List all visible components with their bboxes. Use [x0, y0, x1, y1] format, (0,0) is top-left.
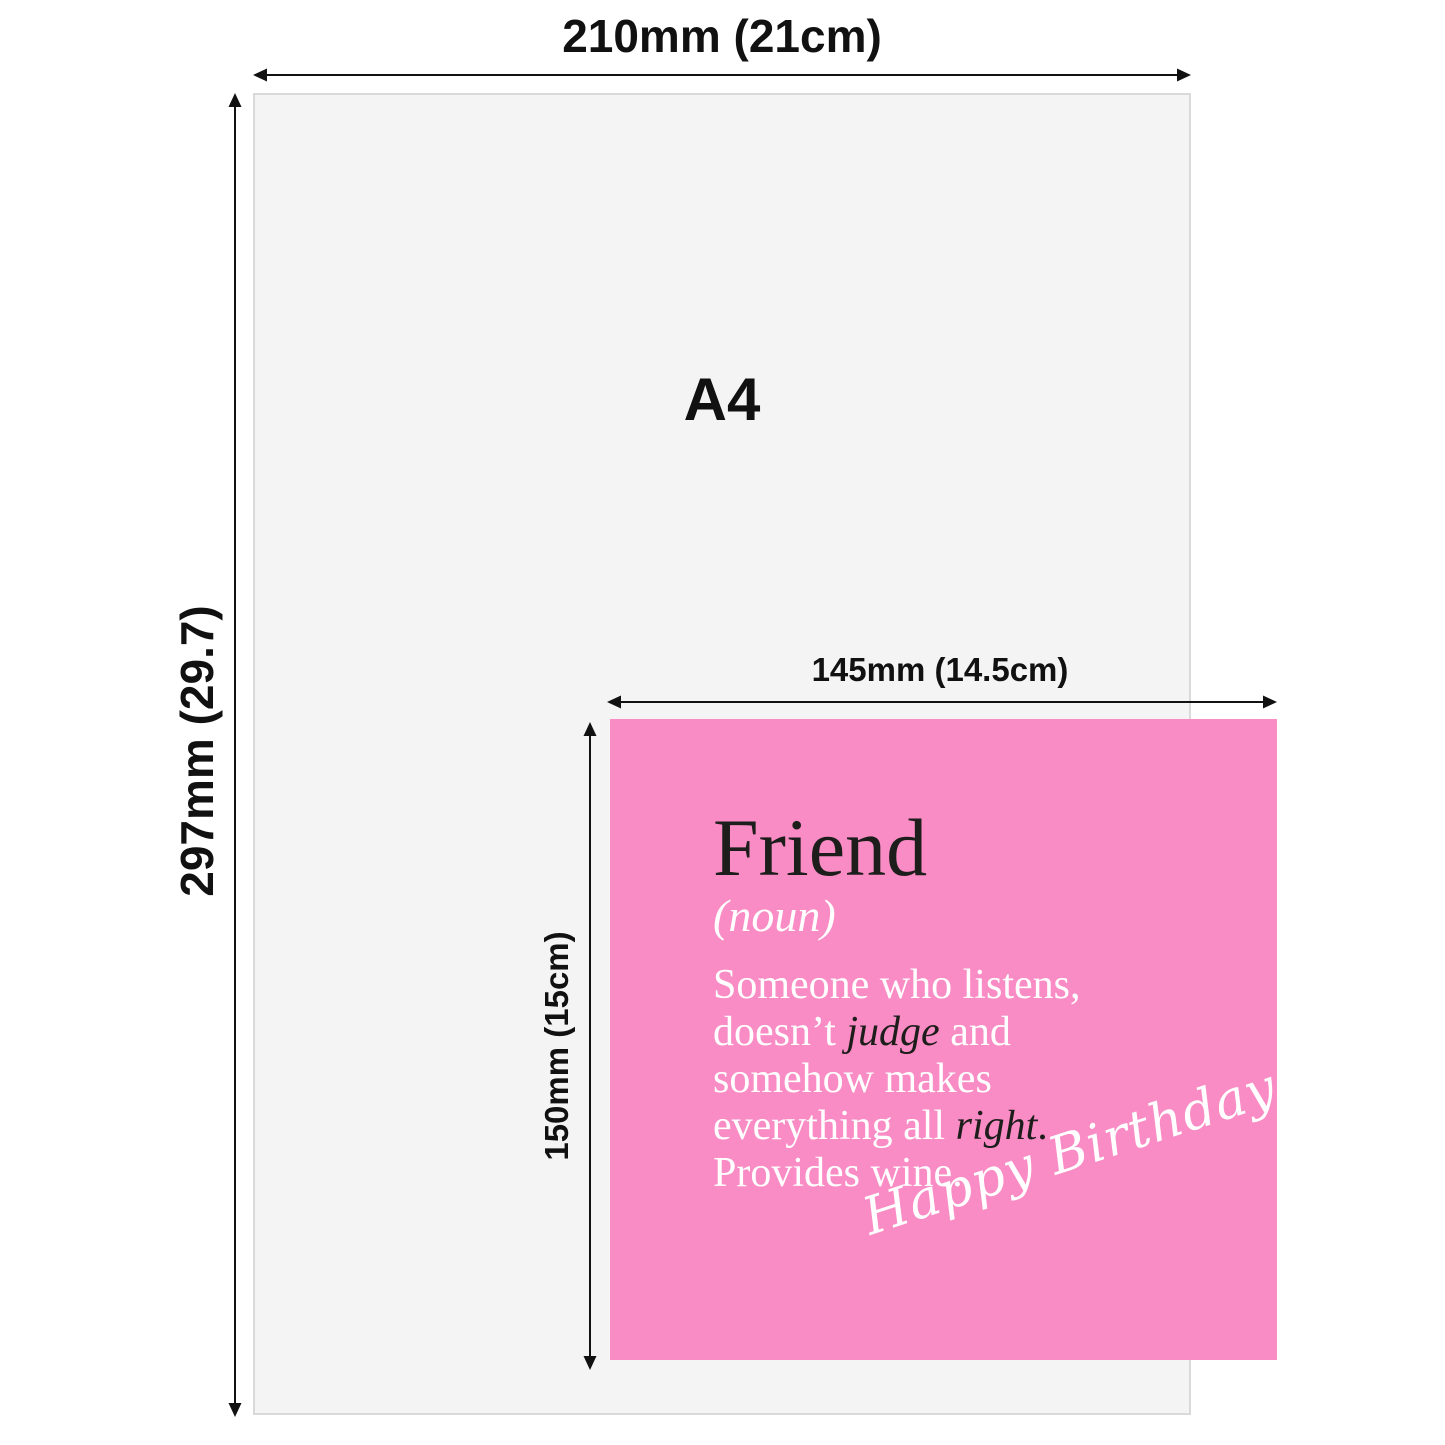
card-title: Friend — [713, 807, 1247, 889]
card-height-label: 150mm (15cm) — [540, 746, 574, 1346]
card-width-label: 145mm (14.5cm) — [640, 651, 1240, 689]
a4-width-arrow — [253, 69, 1191, 82]
definition-line: Someone who listens, — [713, 962, 1247, 1009]
a4-height-arrow — [229, 93, 242, 1417]
greeting-card: Friend (noun) Someone who listens,doesn’… — [610, 719, 1277, 1360]
a4-size-label: A4 — [255, 365, 1189, 434]
a4-height-label: 297mm (29.7) — [174, 451, 220, 1051]
a4-width-label: 210mm (21cm) — [422, 9, 1022, 63]
size-comparison-diagram: A4 210mm (21cm) 297mm (29.7) 145mm (14.5… — [0, 0, 1445, 1445]
card-subtitle: (noun) — [713, 891, 1247, 942]
definition-line: doesn’t judge and — [713, 1009, 1247, 1056]
